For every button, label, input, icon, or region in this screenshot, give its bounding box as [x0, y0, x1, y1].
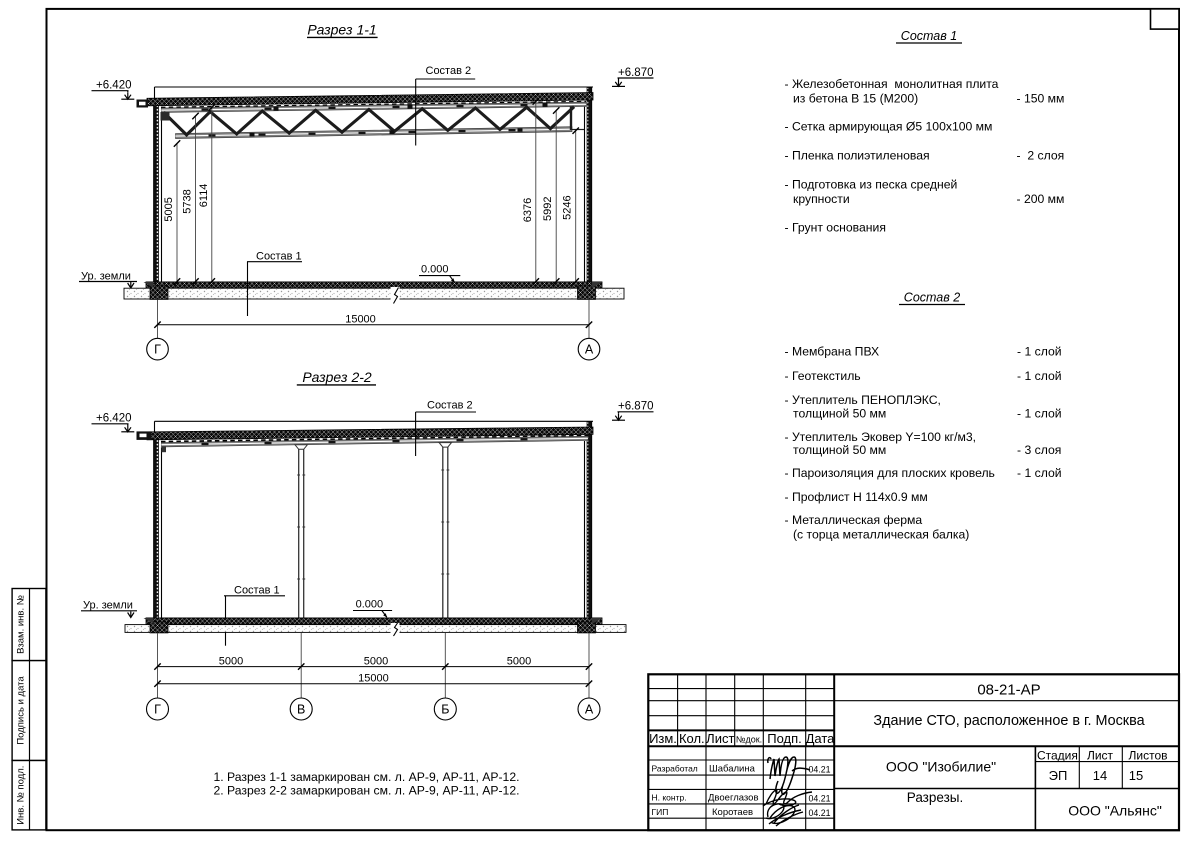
svg-text:0.000: 0.000	[421, 264, 449, 276]
svg-text:Разрезы.: Разрезы.	[907, 790, 963, 805]
svg-text:Состав 2: Состав 2	[426, 65, 472, 77]
svg-text:- Утеплитель Эковер Y=100 кг/м: - Утеплитель Эковер Y=100 кг/м3,	[785, 430, 977, 444]
svg-text:Ур. земли: Ур. земли	[83, 600, 133, 612]
svg-text:+6.420: +6.420	[96, 413, 132, 425]
svg-text:- 2 слоя: - 2 слоя	[1017, 149, 1065, 163]
svg-text:Состав 2: Состав 2	[904, 291, 960, 305]
svg-text:04.21: 04.21	[809, 794, 831, 804]
svg-text:А: А	[585, 343, 594, 357]
svg-text:ООО "Изобилие": ООО "Изобилие"	[886, 759, 996, 775]
svg-text:- 200 мм: - 200 мм	[1017, 192, 1065, 206]
svg-text:- 1 слой: - 1 слой	[1017, 407, 1062, 421]
svg-text:5992: 5992	[542, 197, 554, 221]
svg-text:+6.870: +6.870	[618, 401, 654, 413]
svg-text:(с торца металлическая балка): (с торца металлическая балка)	[793, 528, 969, 542]
svg-text:5738: 5738	[182, 189, 194, 213]
svg-text:Кол.: Кол.	[679, 731, 705, 746]
svg-text:5000: 5000	[219, 655, 243, 667]
svg-text:- Геотекстиль: - Геотекстиль	[785, 369, 861, 383]
svg-text:2. Разрез 2-2 замаркирован см.: 2. Разрез 2-2 замаркирован см. л. АР-9, …	[214, 784, 520, 798]
svg-text:Двоеглазов: Двоеглазов	[708, 793, 759, 804]
svg-text:Лист: Лист	[1087, 749, 1114, 763]
svg-text:15: 15	[1129, 768, 1143, 783]
svg-text:Б: Б	[441, 703, 449, 717]
svg-text:Дата: Дата	[806, 731, 836, 746]
svg-text:Здание СТО, расположенное в г.: Здание СТО, расположенное в г. Москва	[873, 713, 1144, 729]
svg-text:14: 14	[1093, 768, 1107, 783]
svg-text:6376: 6376	[522, 198, 534, 222]
svg-text:Листов: Листов	[1129, 749, 1168, 763]
svg-text:- Грунт основания: - Грунт основания	[785, 221, 886, 235]
svg-text:15000: 15000	[358, 673, 389, 685]
svg-text:Состав 1: Состав 1	[901, 29, 957, 43]
svg-text:1. Разрез 1-1 замаркирован см.: 1. Разрез 1-1 замаркирован см. л. АР-9, …	[214, 770, 520, 784]
svg-text:0.000: 0.000	[356, 599, 384, 611]
svg-text:5005: 5005	[163, 197, 175, 221]
svg-text:из бетона В 15 (М200): из бетона В 15 (М200)	[793, 92, 918, 106]
svg-text:Инв. № подл.: Инв. № подл.	[16, 766, 27, 825]
svg-text:Стадия: Стадия	[1037, 749, 1078, 763]
svg-text:толщиной 50 мм: толщиной 50 мм	[793, 407, 886, 421]
svg-text:Подп.: Подп.	[767, 731, 802, 746]
svg-text:Состав 1: Состав 1	[256, 251, 302, 263]
svg-text:+6.870: +6.870	[618, 67, 654, 79]
svg-text:крупности: крупности	[793, 192, 850, 206]
svg-text:5000: 5000	[507, 655, 531, 667]
svg-text:Разрез 1-1: Разрез 1-1	[307, 22, 376, 38]
svg-text:Разработал: Разработал	[652, 764, 698, 774]
svg-text:- Металлическая ферма: - Металлическая ферма	[785, 513, 923, 527]
svg-text:Изм.: Изм.	[649, 731, 677, 746]
svg-text:- Подготовка из песка средней: - Подготовка из песка средней	[785, 178, 958, 192]
svg-text:А: А	[585, 703, 594, 717]
svg-text:08-21-АР: 08-21-АР	[977, 682, 1040, 699]
svg-text:- 3 слоя: - 3 слоя	[1017, 443, 1061, 457]
svg-text:Взам. инв. №: Взам. инв. №	[16, 595, 27, 654]
svg-text:5246: 5246	[562, 195, 574, 219]
svg-text:Ур. земли: Ур. земли	[81, 271, 131, 283]
svg-text:ЭП: ЭП	[1049, 768, 1068, 783]
svg-text:15000: 15000	[345, 314, 376, 326]
svg-text:№док.: №док.	[736, 735, 762, 745]
svg-text:5000: 5000	[364, 655, 388, 667]
svg-text:- 150 мм: - 150 мм	[1017, 92, 1065, 106]
svg-text:- Утеплитель ПЕНОПЛЭКС,: - Утеплитель ПЕНОПЛЭКС,	[785, 393, 941, 407]
svg-text:- Профлист Н 114х0.9 мм: - Профлист Н 114х0.9 мм	[785, 490, 928, 504]
svg-text:- Мембрана ПВХ: - Мембрана ПВХ	[785, 345, 880, 359]
svg-text:6114: 6114	[198, 184, 210, 208]
svg-text:- 1 слой: - 1 слой	[1017, 466, 1062, 480]
svg-text:Лист: Лист	[706, 731, 734, 746]
svg-text:04.21: 04.21	[809, 808, 831, 818]
svg-text:ООО "Альянс": ООО "Альянс"	[1068, 803, 1162, 819]
svg-text:Состав 1: Состав 1	[234, 585, 280, 597]
svg-text:В: В	[297, 703, 305, 717]
svg-text:04.21: 04.21	[809, 765, 831, 775]
svg-text:- Сетка армирующая Ø5 100х100: - Сетка армирующая Ø5 100х100 мм	[785, 120, 993, 134]
svg-text:Разрез 2-2: Разрез 2-2	[302, 369, 372, 385]
svg-text:- Железобетонная монолитная п: - Железобетонная монолитная плита	[785, 77, 999, 91]
svg-text:толщиной 50 мм: толщиной 50 мм	[793, 443, 886, 457]
svg-text:Состав 2: Состав 2	[427, 400, 473, 412]
svg-text:Н. контр.: Н. контр.	[652, 793, 687, 803]
svg-text:Г: Г	[154, 703, 161, 717]
svg-text:- 1 слой: - 1 слой	[1017, 369, 1062, 383]
svg-text:+6.420: +6.420	[96, 80, 132, 92]
svg-text:Подпись и дата: Подпись и дата	[16, 676, 27, 745]
svg-text:Коротаев: Коротаев	[712, 807, 753, 818]
svg-text:- Пароизоляция для плоских кро: - Пароизоляция для плоских кровель	[785, 466, 995, 480]
svg-text:- Пленка полиэтиленовая: - Пленка полиэтиленовая	[785, 149, 930, 163]
svg-text:Шабалина: Шабалина	[709, 764, 756, 775]
svg-text:ГИП: ГИП	[652, 807, 669, 817]
svg-text:Г: Г	[154, 343, 161, 357]
svg-text:- 1 слой: - 1 слой	[1017, 345, 1062, 359]
